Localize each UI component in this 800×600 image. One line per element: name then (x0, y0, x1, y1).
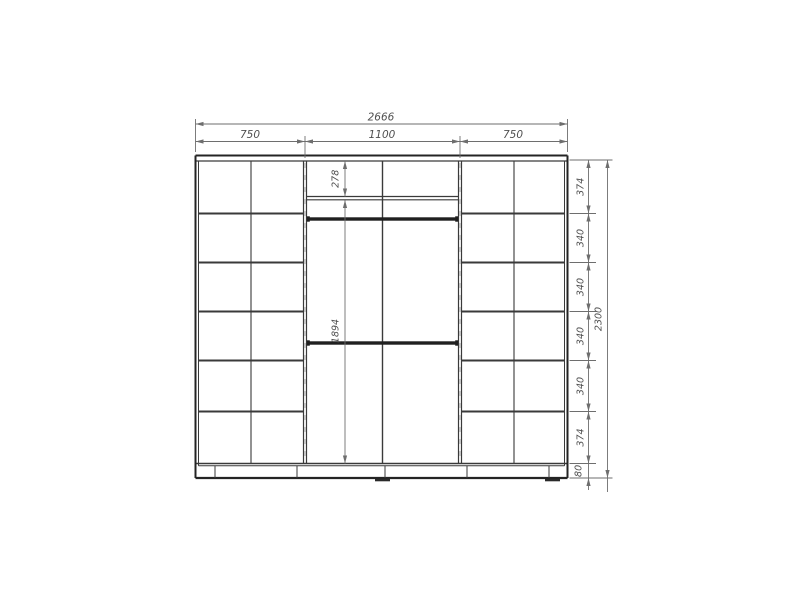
dim-right-segment-4-label: 340 (576, 327, 587, 345)
dim-right-segment-6-label: 374 (576, 428, 587, 446)
dim-right-segment-7-label: 80 (574, 465, 585, 477)
left-shelf-section (199, 161, 304, 464)
dim-right-segment-3-label: 340 (576, 278, 587, 296)
dim-overall-height-label: 2300 (594, 307, 605, 331)
rail-end-cap (307, 340, 310, 345)
foot (545, 479, 560, 481)
right-shelf-section (462, 161, 565, 464)
dim-right-segment-2-label: 340 (576, 229, 587, 247)
rail-end-cap (307, 216, 310, 221)
wardrobe-drawing: 2666 750 1100 750 374 340 340 340 340 37… (0, 0, 800, 600)
top-dimension-lines: 2666 750 1100 750 (196, 112, 568, 159)
section-divider-right (459, 161, 462, 464)
middle-dimension-lines: 278 1894 (331, 161, 346, 464)
right-dimension-lines: 374 340 340 340 340 374 80 2300 (570, 160, 613, 492)
section-divider-left (304, 161, 307, 464)
drawing-canvas: 2666 750 1100 750 374 340 340 340 340 37… (0, 0, 800, 600)
dim-hanging-height-label: 1894 (331, 319, 342, 343)
rail-tube (309, 217, 456, 220)
dim-top-segment-right-label: 750 (503, 129, 523, 141)
rail-end-cap (455, 340, 458, 345)
middle-hanging-section (307, 161, 459, 464)
dim-top-segment-left-label: 750 (240, 129, 260, 141)
dim-right-segment-1-label: 374 (576, 178, 587, 196)
foot (375, 479, 390, 481)
dim-top-segment-center-label: 1100 (369, 129, 396, 141)
dim-upper-shelf-height-label: 278 (331, 170, 342, 188)
dim-right-segment-5-label: 340 (576, 377, 587, 395)
rail-end-cap (455, 216, 458, 221)
dim-overall-width-label: 2666 (368, 112, 395, 124)
